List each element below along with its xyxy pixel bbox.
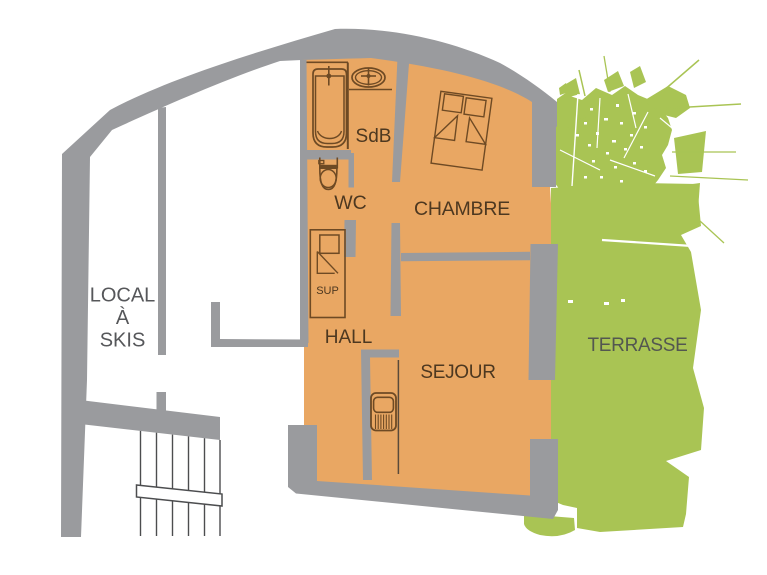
svg-text:À: À bbox=[116, 306, 130, 329]
svg-text:SUP: SUP bbox=[316, 285, 339, 297]
svg-text:SdB: SdB bbox=[356, 126, 392, 147]
svg-text:SKIS: SKIS bbox=[100, 330, 146, 352]
svg-text:SEJOUR: SEJOUR bbox=[420, 362, 495, 383]
svg-text:LOCAL: LOCAL bbox=[90, 285, 156, 307]
svg-text:TERRASSE: TERRASSE bbox=[587, 335, 687, 356]
svg-text:WC: WC bbox=[334, 192, 367, 214]
svg-text:HALL: HALL bbox=[325, 327, 373, 348]
svg-text:CHAMBRE: CHAMBRE bbox=[414, 198, 510, 220]
